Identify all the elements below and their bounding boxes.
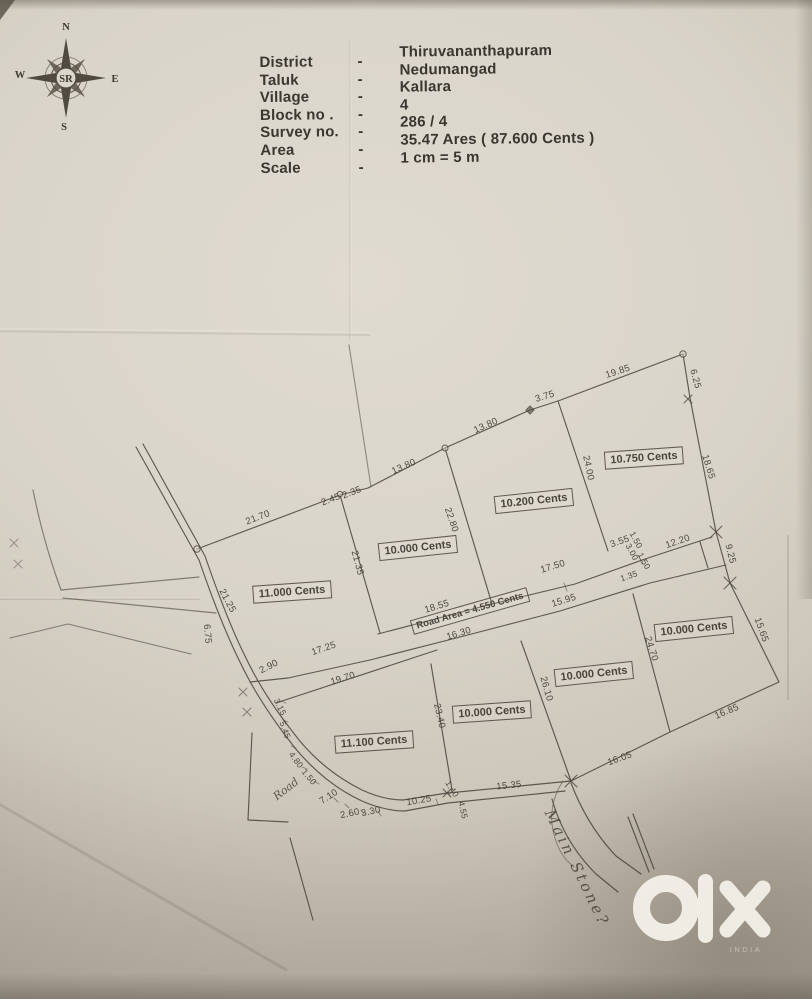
dimension-label: 15.35 xyxy=(496,780,522,792)
olx-country-label: INDIA xyxy=(730,945,763,954)
scanned-survey-sketch: SR N S E W District - Thiruvananthapuram… xyxy=(0,0,812,999)
dimension-label: 6.75 xyxy=(201,624,212,644)
olx-logo: INDIA xyxy=(612,850,812,970)
